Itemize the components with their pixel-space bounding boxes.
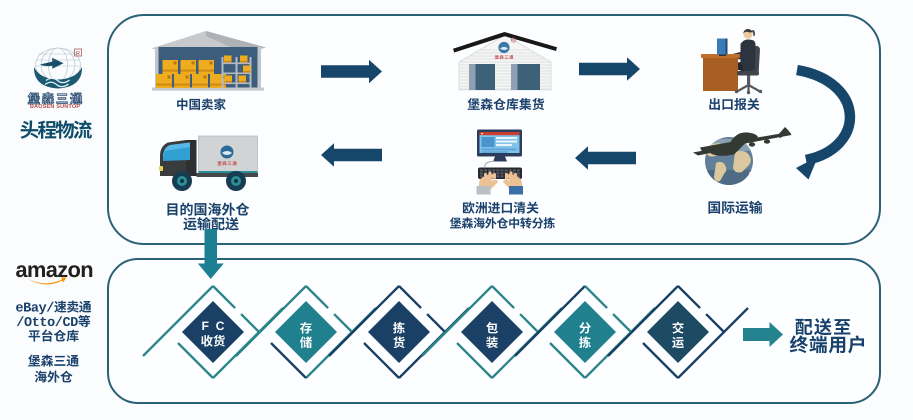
svg-text:R: R: [76, 51, 80, 57]
